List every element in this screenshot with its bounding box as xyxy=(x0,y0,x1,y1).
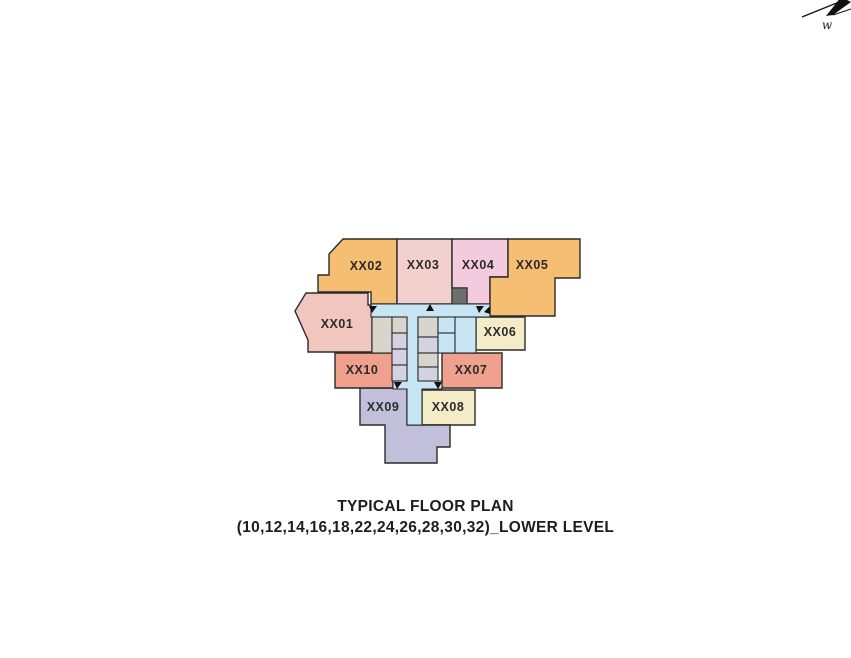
core-room-2 xyxy=(392,317,407,333)
core-room-7 xyxy=(418,337,438,353)
unit-label-xx10: XX10 xyxy=(346,363,379,377)
plan-title-line2: (10,12,14,16,18,22,24,26,28,30,32)_LOWER… xyxy=(0,517,851,538)
core-room-4 xyxy=(392,349,407,365)
core-room-6 xyxy=(418,317,438,337)
floor-plan-page: w XX01XX02XX03XX04XX05XX06XX07XX08XX09XX… xyxy=(0,0,851,658)
core-room-9 xyxy=(418,367,438,381)
core-room-11 xyxy=(438,333,455,353)
unit-label-xx09: XX09 xyxy=(367,400,400,414)
unit-label-xx01: XX01 xyxy=(321,317,354,331)
unit-label-xx04: XX04 xyxy=(462,258,495,272)
core-room-1 xyxy=(372,317,392,353)
unit-label-xx02: XX02 xyxy=(350,259,383,273)
plan-title-line1: TYPICAL FLOOR PLAN xyxy=(0,496,851,517)
unit-label-xx03: XX03 xyxy=(407,258,440,272)
unit-label-xx06: XX06 xyxy=(484,325,517,339)
plan-title: TYPICAL FLOOR PLAN (10,12,14,16,18,22,24… xyxy=(0,496,851,538)
compass-rose: w xyxy=(802,0,851,32)
core-room-10 xyxy=(438,317,455,333)
unit-label-xx07: XX07 xyxy=(455,363,488,377)
unit-label-xx05: XX05 xyxy=(516,258,549,272)
service-shaft-block xyxy=(452,288,467,304)
compass-west-label: w xyxy=(822,18,833,32)
unit-label-xx08: XX08 xyxy=(432,400,465,414)
core-room-8 xyxy=(418,353,438,367)
floor-plan-svg: w XX01XX02XX03XX04XX05XX06XX07XX08XX09XX… xyxy=(0,0,851,658)
core-room-5 xyxy=(392,365,407,381)
core-room-3 xyxy=(392,333,407,349)
floor-plan-diagram: XX01XX02XX03XX04XX05XX06XX07XX08XX09XX10 xyxy=(295,239,580,463)
core-room-12 xyxy=(455,317,476,353)
